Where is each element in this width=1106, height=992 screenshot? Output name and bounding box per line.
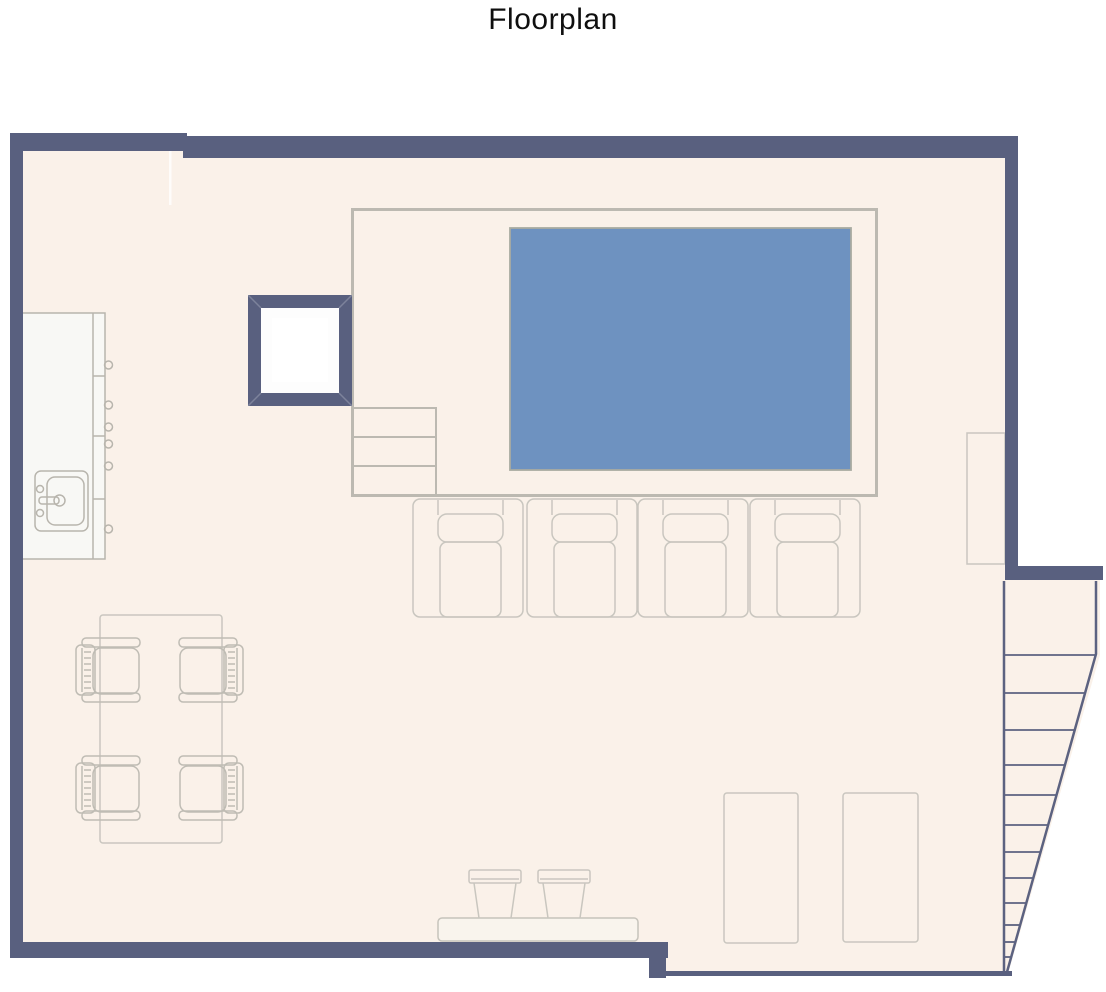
right-wall xyxy=(1005,136,1018,580)
top-wall-right xyxy=(183,136,1018,158)
bench xyxy=(438,918,638,941)
bottom-wall-thin xyxy=(660,971,1012,976)
stair-top-wall xyxy=(1005,566,1103,580)
wall-finish-mark xyxy=(169,150,172,205)
bottom-wall xyxy=(10,942,668,958)
column-interior xyxy=(272,318,328,382)
left-wall xyxy=(10,133,23,958)
top-wall-left xyxy=(10,133,187,151)
floorplan-drawing xyxy=(0,0,1106,992)
floorplan-page: { "title": "Floorplan", "colors": { "bac… xyxy=(0,0,1106,992)
swimming-pool xyxy=(510,228,851,470)
skylight-column xyxy=(248,295,352,406)
kitchen-counter xyxy=(22,313,113,559)
